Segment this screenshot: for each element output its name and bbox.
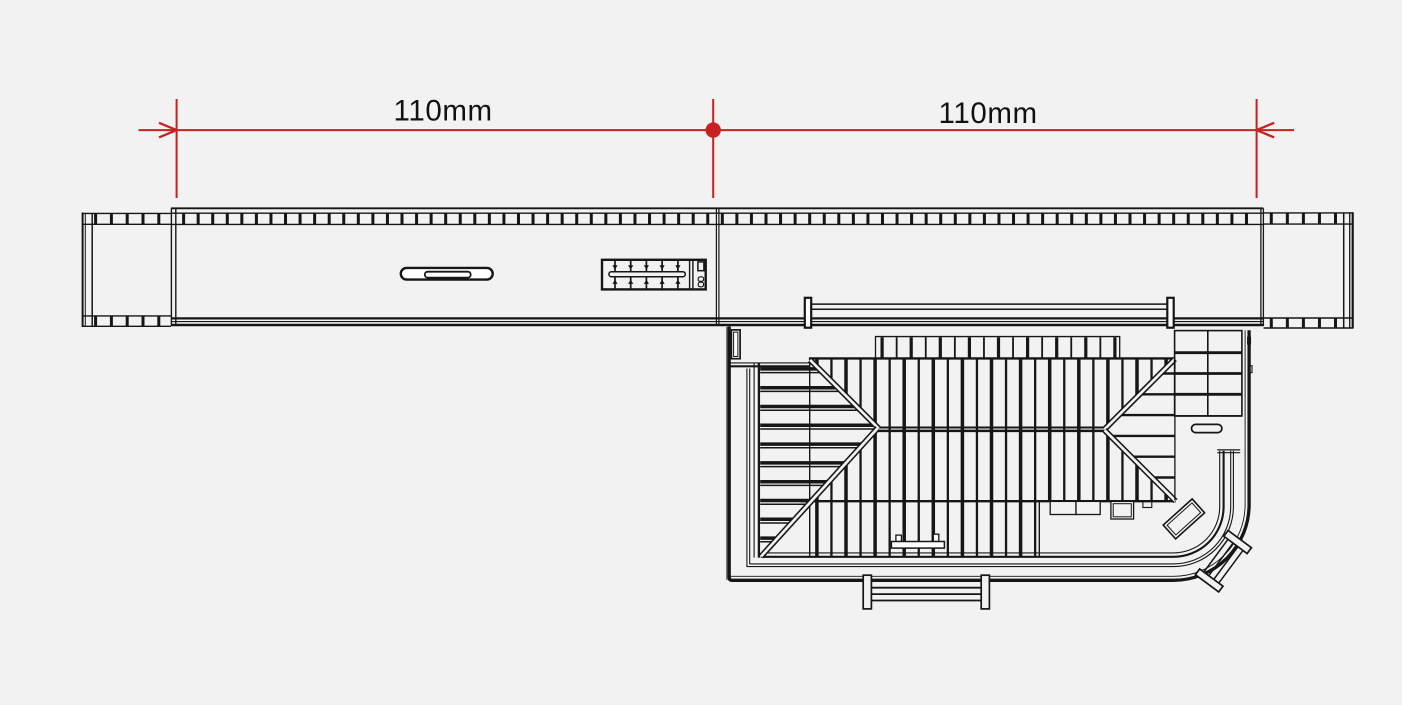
svg-text:110mm: 110mm xyxy=(394,94,493,127)
svg-text:110mm: 110mm xyxy=(939,97,1038,130)
